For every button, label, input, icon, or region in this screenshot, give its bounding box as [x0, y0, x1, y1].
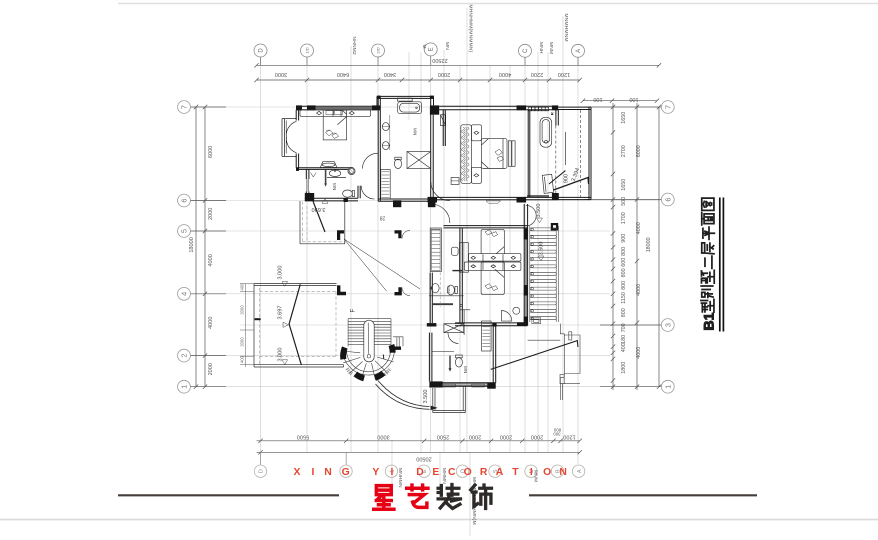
- svg-text:M: M: [421, 45, 427, 49]
- svg-text:4000: 4000: [636, 222, 642, 234]
- svg-text:T: T: [512, 467, 519, 478]
- svg-text:4: 4: [180, 292, 189, 296]
- svg-text:400: 400: [621, 343, 627, 352]
- svg-text:1200: 1200: [563, 434, 575, 440]
- svg-text:1: 1: [663, 385, 672, 389]
- svg-text:6: 6: [663, 197, 672, 201]
- svg-text:MNHMN: MNHMN: [397, 468, 403, 488]
- svg-text:2200: 2200: [531, 71, 543, 77]
- svg-text:MN: MN: [444, 42, 450, 50]
- svg-text:I: I: [391, 467, 394, 478]
- svg-text:O: O: [543, 467, 551, 478]
- svg-text:3400: 3400: [384, 71, 396, 77]
- svg-text:180: 180: [621, 335, 627, 344]
- svg-text:400: 400: [240, 283, 245, 291]
- svg-text:2: 2: [180, 354, 189, 358]
- svg-text:MHMN: MHMN: [441, 468, 447, 484]
- svg-text:6: 6: [180, 198, 189, 202]
- svg-text:1150: 1150: [621, 292, 627, 304]
- svg-text:800: 800: [553, 427, 561, 432]
- svg-text:1200: 1200: [558, 71, 570, 77]
- svg-text:7: 7: [663, 105, 672, 109]
- svg-text:4000: 4000: [499, 71, 511, 77]
- svg-text:800: 800: [621, 281, 627, 290]
- svg-text:100: 100: [593, 96, 602, 102]
- svg-text:28: 28: [380, 215, 386, 221]
- svg-text:2000: 2000: [208, 208, 214, 220]
- svg-text:600: 600: [621, 258, 627, 267]
- svg-text:700: 700: [621, 323, 627, 332]
- svg-text:G: G: [342, 467, 350, 478]
- svg-text:3: 3: [663, 323, 672, 327]
- svg-text:800: 800: [621, 308, 627, 317]
- svg-text:3000: 3000: [377, 434, 389, 440]
- svg-text:22500: 22500: [432, 57, 448, 63]
- svg-text:4000: 4000: [208, 254, 214, 266]
- svg-text:N: N: [324, 467, 332, 478]
- svg-text:MNM: MNM: [548, 42, 554, 54]
- svg-text:MNM: MNM: [532, 470, 538, 482]
- svg-text:F: F: [351, 309, 357, 313]
- svg-text:2000: 2000: [469, 434, 481, 440]
- svg-text:7: 7: [180, 105, 189, 109]
- svg-text:R: R: [480, 467, 488, 478]
- svg-text:I: I: [530, 467, 533, 478]
- svg-text:900: 900: [621, 234, 627, 243]
- svg-text:6400: 6400: [337, 71, 349, 77]
- svg-text:D: D: [416, 467, 424, 478]
- svg-text:O: O: [464, 467, 472, 478]
- svg-text:18000: 18000: [646, 237, 652, 252]
- svg-text:5500: 5500: [297, 434, 309, 440]
- svg-text:2500: 2500: [437, 434, 449, 440]
- svg-text:C: C: [523, 48, 529, 53]
- svg-text:I: I: [312, 467, 315, 478]
- svg-text:B1: B1: [700, 312, 716, 330]
- svg-text:X: X: [294, 467, 301, 478]
- svg-text:1: 1: [180, 385, 189, 389]
- svg-text:3.000: 3.000: [278, 348, 284, 362]
- svg-text:1700: 1700: [621, 212, 627, 224]
- svg-text:2000: 2000: [531, 434, 543, 440]
- svg-text:3.500: 3.500: [536, 204, 542, 218]
- svg-text:5: 5: [180, 229, 189, 233]
- svg-text:400: 400: [240, 355, 245, 363]
- svg-text:1650: 1650: [621, 112, 627, 124]
- svg-text:3.500: 3.500: [423, 390, 429, 404]
- svg-text:6000: 6000: [636, 145, 642, 157]
- svg-text:3.000: 3.000: [278, 266, 284, 280]
- svg-text:3.697: 3.697: [278, 306, 284, 320]
- svg-text:2000: 2000: [208, 363, 214, 375]
- svg-text:Y: Y: [372, 467, 379, 478]
- svg-text:A: A: [577, 469, 583, 473]
- svg-text:MNH: MNH: [538, 42, 544, 54]
- svg-text:900: 900: [563, 174, 569, 183]
- svg-text:2000: 2000: [240, 305, 245, 315]
- svg-text:NHNM2: NHNM2: [351, 37, 357, 55]
- svg-text:3.600: 3.600: [539, 242, 545, 256]
- svg-text:MN: MN: [446, 286, 451, 294]
- svg-text:3.690: 3.690: [312, 206, 326, 212]
- svg-text:500: 500: [621, 197, 627, 206]
- svg-text:MHNHMM(MNMMN): MHNHMM(MNMMN): [467, 5, 473, 53]
- svg-text:A: A: [496, 467, 504, 478]
- svg-text:MN: MN: [332, 183, 337, 191]
- svg-text:A: A: [576, 49, 582, 53]
- svg-text:100: 100: [629, 96, 638, 102]
- svg-text:20500: 20500: [416, 455, 432, 461]
- svg-text:4000: 4000: [636, 284, 642, 296]
- svg-text:E: E: [432, 467, 439, 478]
- svg-text:4000: 4000: [636, 347, 642, 359]
- svg-text:C: C: [448, 467, 456, 478]
- svg-text:2000: 2000: [500, 434, 512, 440]
- svg-text:E: E: [429, 47, 435, 51]
- svg-text:1/D: 1/D: [305, 47, 310, 53]
- svg-text:N: N: [559, 467, 567, 478]
- svg-text:18000: 18000: [189, 237, 195, 253]
- svg-text:800: 800: [621, 268, 627, 277]
- svg-text:D: D: [259, 48, 265, 53]
- svg-text:1650: 1650: [621, 179, 627, 191]
- svg-text:800: 800: [621, 247, 627, 256]
- svg-text:2000: 2000: [438, 71, 450, 77]
- svg-text:4000: 4000: [208, 316, 214, 328]
- svg-text:2000: 2000: [240, 337, 245, 347]
- svg-text:6000: 6000: [208, 146, 214, 158]
- svg-text:MN: MN: [463, 366, 468, 374]
- svg-text:MN: MN: [413, 128, 418, 136]
- svg-text:2700: 2700: [621, 145, 627, 157]
- svg-text:MNMHMNM: MNMHMNM: [563, 14, 569, 42]
- svg-text:1800: 1800: [621, 362, 627, 374]
- svg-text:D: D: [259, 469, 265, 473]
- svg-text:3000: 3000: [275, 71, 287, 77]
- svg-text:2/D: 2/D: [376, 47, 381, 53]
